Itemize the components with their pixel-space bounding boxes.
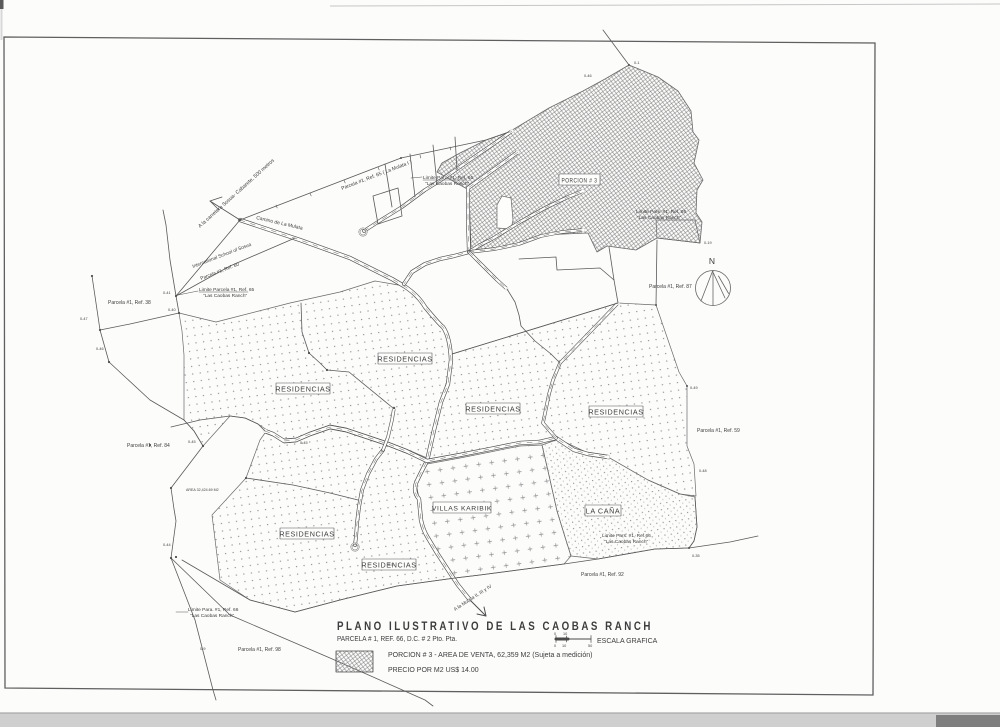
- svg-text:VILLAS KARIBIK: VILLAS KARIBIK: [432, 506, 492, 513]
- svg-text:50: 50: [588, 644, 592, 648]
- svg-text:Parcela #1, Ref. 98: Parcela #1, Ref. 98: [238, 647, 281, 653]
- svg-text:0-49: 0-49: [690, 386, 698, 390]
- svg-text:0-46: 0-46: [584, 74, 592, 78]
- svg-text:Parcela #1, Ref. 87: Parcela #1, Ref. 87: [649, 284, 692, 290]
- svg-text:0-35: 0-35: [692, 554, 700, 558]
- svg-text:"Las Caobas Ranch": "Las Caobas Ranch": [190, 613, 235, 619]
- svg-text:AREA 32,424.69 M2: AREA 32,424.69 M2: [186, 488, 219, 492]
- svg-text:PRECIO POR M2 US$ 14.00: PRECIO POR M2 US$ 14.00: [388, 667, 479, 674]
- svg-text:Limite Para. #1, Ref. 66: Limite Para. #1, Ref. 66: [188, 607, 239, 613]
- svg-text:"Las Caobas Ranch": "Las Caobas Ranch": [604, 539, 649, 545]
- svg-text:ESCALA GRAFICA: ESCALA GRAFICA: [597, 638, 658, 645]
- svg-text:Parcela #1, Ref. 38: Parcela #1, Ref. 38: [108, 300, 151, 306]
- svg-text:0-46: 0-46: [96, 347, 104, 351]
- svg-text:0-19: 0-19: [704, 241, 712, 245]
- svg-text:0-41: 0-41: [163, 291, 171, 295]
- svg-text:PORCION # 3 - AREA DE VENTA,: PORCION # 3 - AREA DE VENTA, 62,359 M2 (…: [388, 652, 593, 659]
- svg-text:LA CAÑA: LA CAÑA: [586, 507, 621, 516]
- svg-text:0-5: 0-5: [388, 563, 394, 567]
- svg-text:RESIDENCIAS: RESIDENCIAS: [275, 385, 330, 394]
- svg-text:0-9: 0-9: [200, 647, 206, 651]
- svg-text:Parcela #1, Ref. 84: Parcela #1, Ref. 84: [127, 443, 170, 449]
- svg-text:RESIDENCIAS: RESIDENCIAS: [279, 530, 334, 539]
- svg-text:Parcela #1, Ref. 92: Parcela #1, Ref. 92: [581, 572, 624, 578]
- svg-text:"Las Caobas Ranch": "Las Caobas Ranch": [425, 181, 470, 187]
- svg-text:RESIDENCIAS: RESIDENCIAS: [465, 405, 520, 414]
- svg-text:10: 10: [563, 632, 567, 636]
- svg-text:RESIDENCIAS: RESIDENCIAS: [377, 355, 432, 364]
- svg-text:RESIDENCIAS: RESIDENCIAS: [588, 408, 643, 417]
- svg-text:PLANO ILUSTRATIVO DE LAS CAOBA: PLANO ILUSTRATIVO DE LAS CAOBAS RANCH: [337, 621, 653, 633]
- svg-text:10: 10: [562, 644, 566, 648]
- svg-text:0: 0: [554, 644, 556, 648]
- svg-text:"Las Caobas Ranch": "Las Caobas Ranch": [203, 293, 248, 299]
- svg-text:Limite Pars. #1, Ref.66: Limite Pars. #1, Ref.66: [602, 533, 651, 539]
- svg-text:Parcela #1, Ref. 59: Parcela #1, Ref. 59: [697, 428, 740, 434]
- svg-text:0-1: 0-1: [634, 61, 640, 65]
- svg-text:N: N: [709, 256, 715, 266]
- svg-text:0-45: 0-45: [188, 440, 196, 444]
- svg-text:"Las Caobas Ranch": "Las Caobas Ranch": [637, 215, 682, 221]
- svg-text:PORCION # 3: PORCION # 3: [562, 179, 598, 185]
- svg-text:Limite Pars. #1, Ref. 66: Limite Pars. #1, Ref. 66: [636, 209, 686, 215]
- svg-text:0-40: 0-40: [168, 308, 176, 312]
- svg-text:0: 0: [554, 632, 556, 636]
- svg-text:0-45: 0-45: [300, 441, 308, 445]
- svg-text:PARCELA # 1, REF. 66, D.C. # 2: PARCELA # 1, REF. 66, D.C. # 2 Pto. Pta.: [337, 636, 457, 643]
- svg-text:0-47: 0-47: [80, 317, 88, 321]
- svg-text:0-48: 0-48: [699, 469, 707, 473]
- svg-text:0-44: 0-44: [163, 543, 171, 547]
